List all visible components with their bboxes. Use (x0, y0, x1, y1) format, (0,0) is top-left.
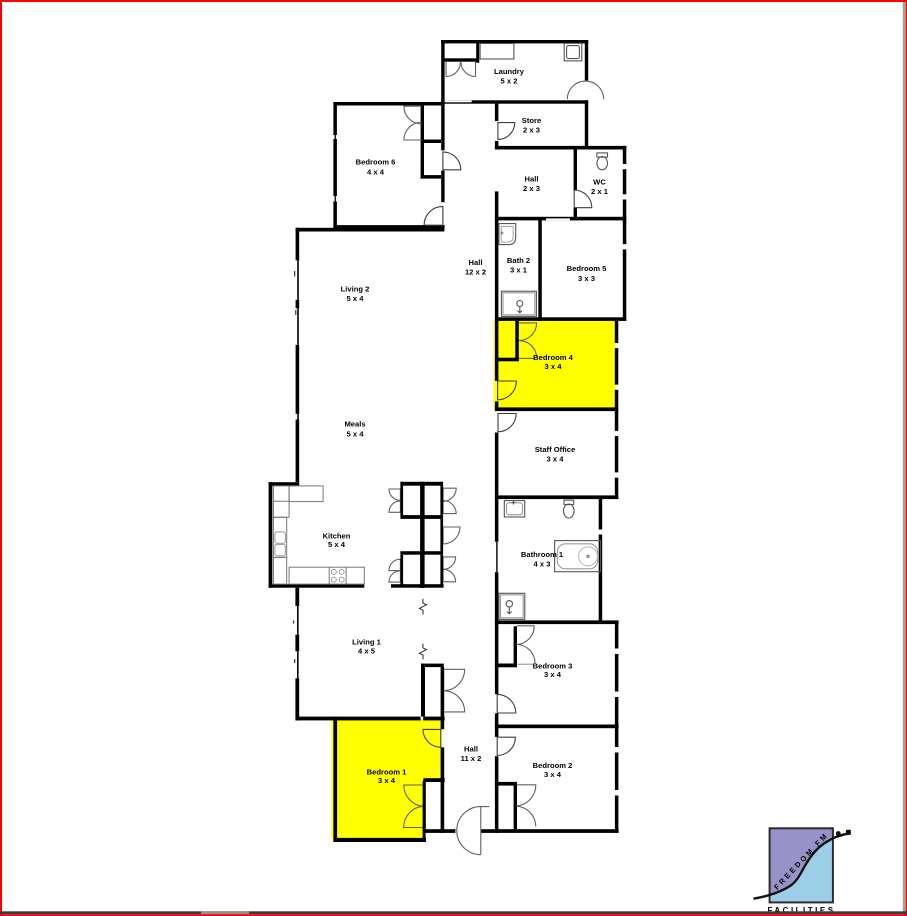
svg-text:Bedroom 4: Bedroom 4 (533, 353, 573, 362)
svg-text:Hall: Hall (464, 744, 478, 753)
svg-text:4 x 4: 4 x 4 (367, 167, 385, 176)
svg-text:5 x 4: 5 x 4 (347, 294, 365, 303)
svg-text:3 x 4: 3 x 4 (547, 454, 565, 463)
svg-text:5 x 4: 5 x 4 (328, 540, 346, 549)
svg-text:Hall: Hall (525, 175, 539, 184)
svg-text:Bath 2: Bath 2 (507, 256, 530, 265)
svg-text:Meals: Meals (344, 420, 365, 429)
svg-text:2 x 3: 2 x 3 (523, 126, 540, 135)
svg-text:3 x 4: 3 x 4 (544, 670, 562, 679)
svg-text:11 x 2: 11 x 2 (461, 754, 482, 763)
svg-text:3 x 4: 3 x 4 (378, 776, 396, 785)
svg-text:Bedroom 1: Bedroom 1 (367, 767, 407, 776)
svg-text:Staff Office: Staff Office (535, 445, 576, 454)
svg-text:4 x 5: 4 x 5 (358, 647, 376, 656)
svg-text:2 x 1: 2 x 1 (591, 187, 609, 196)
svg-text:3 x 4: 3 x 4 (545, 362, 563, 371)
svg-text:Living 1: Living 1 (352, 638, 381, 647)
svg-text:3 x 3: 3 x 3 (578, 274, 595, 283)
svg-text:5 x 4: 5 x 4 (347, 429, 365, 438)
svg-text:3 x 4: 3 x 4 (544, 770, 562, 779)
svg-text:3 x 1: 3 x 1 (510, 265, 528, 274)
svg-text:Bedroom 3: Bedroom 3 (533, 661, 573, 670)
svg-text:Bedroom 2: Bedroom 2 (533, 761, 573, 770)
svg-text:Living 2: Living 2 (341, 285, 370, 294)
svg-text:Bathroom 1: Bathroom 1 (521, 550, 564, 559)
svg-text:2 x 3: 2 x 3 (523, 184, 540, 193)
svg-text:Store: Store (522, 116, 541, 125)
svg-text:Bedroom 5: Bedroom 5 (567, 264, 607, 273)
svg-text:WC: WC (593, 177, 606, 186)
svg-text:5 x 2: 5 x 2 (501, 76, 518, 85)
svg-text:4 x 3: 4 x 3 (534, 560, 551, 569)
svg-text:Bedroom 6: Bedroom 6 (356, 158, 396, 167)
svg-text:Laundry: Laundry (494, 67, 525, 76)
svg-text:Hall: Hall (469, 258, 483, 267)
svg-text:12 x 2: 12 x 2 (465, 268, 486, 277)
